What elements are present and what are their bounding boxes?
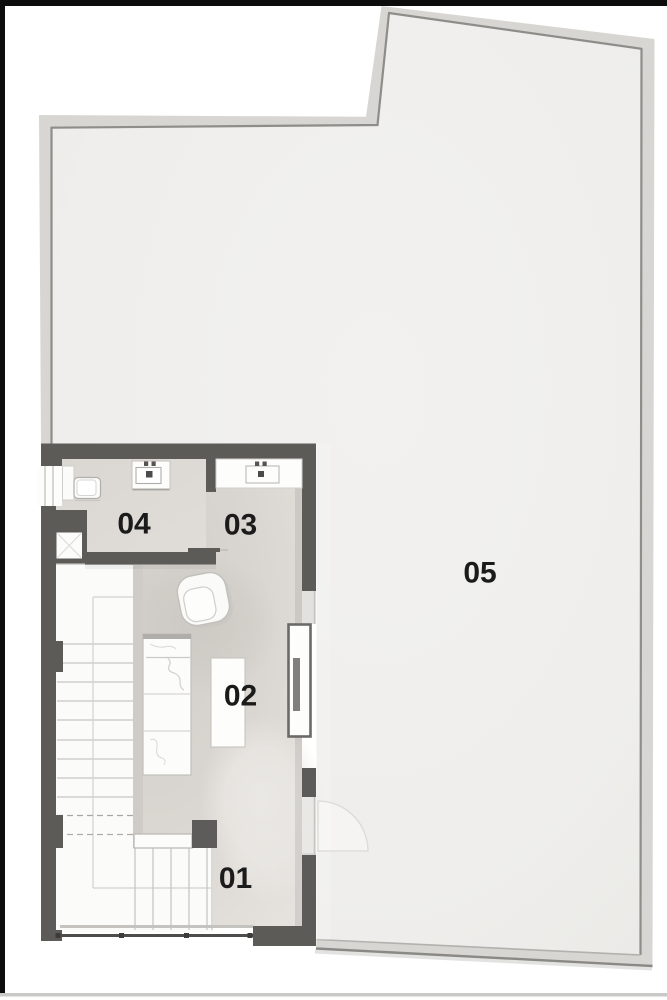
svg-text:05: 05 [463, 557, 496, 590]
svg-text:03: 03 [224, 509, 257, 542]
svg-text:01: 01 [219, 862, 252, 895]
svg-text:02: 02 [224, 680, 257, 713]
svg-text:04: 04 [117, 508, 151, 541]
